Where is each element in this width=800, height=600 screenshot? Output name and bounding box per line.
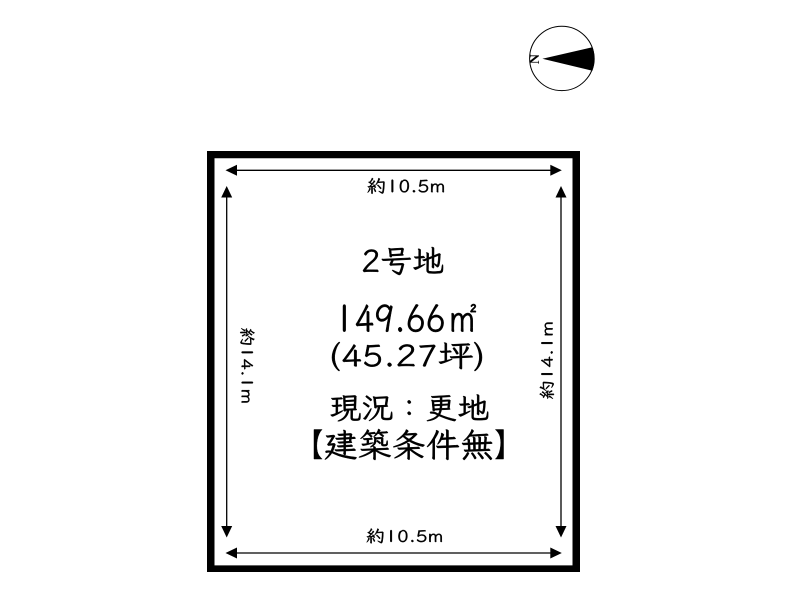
svg-text:N: N [528, 54, 543, 64]
